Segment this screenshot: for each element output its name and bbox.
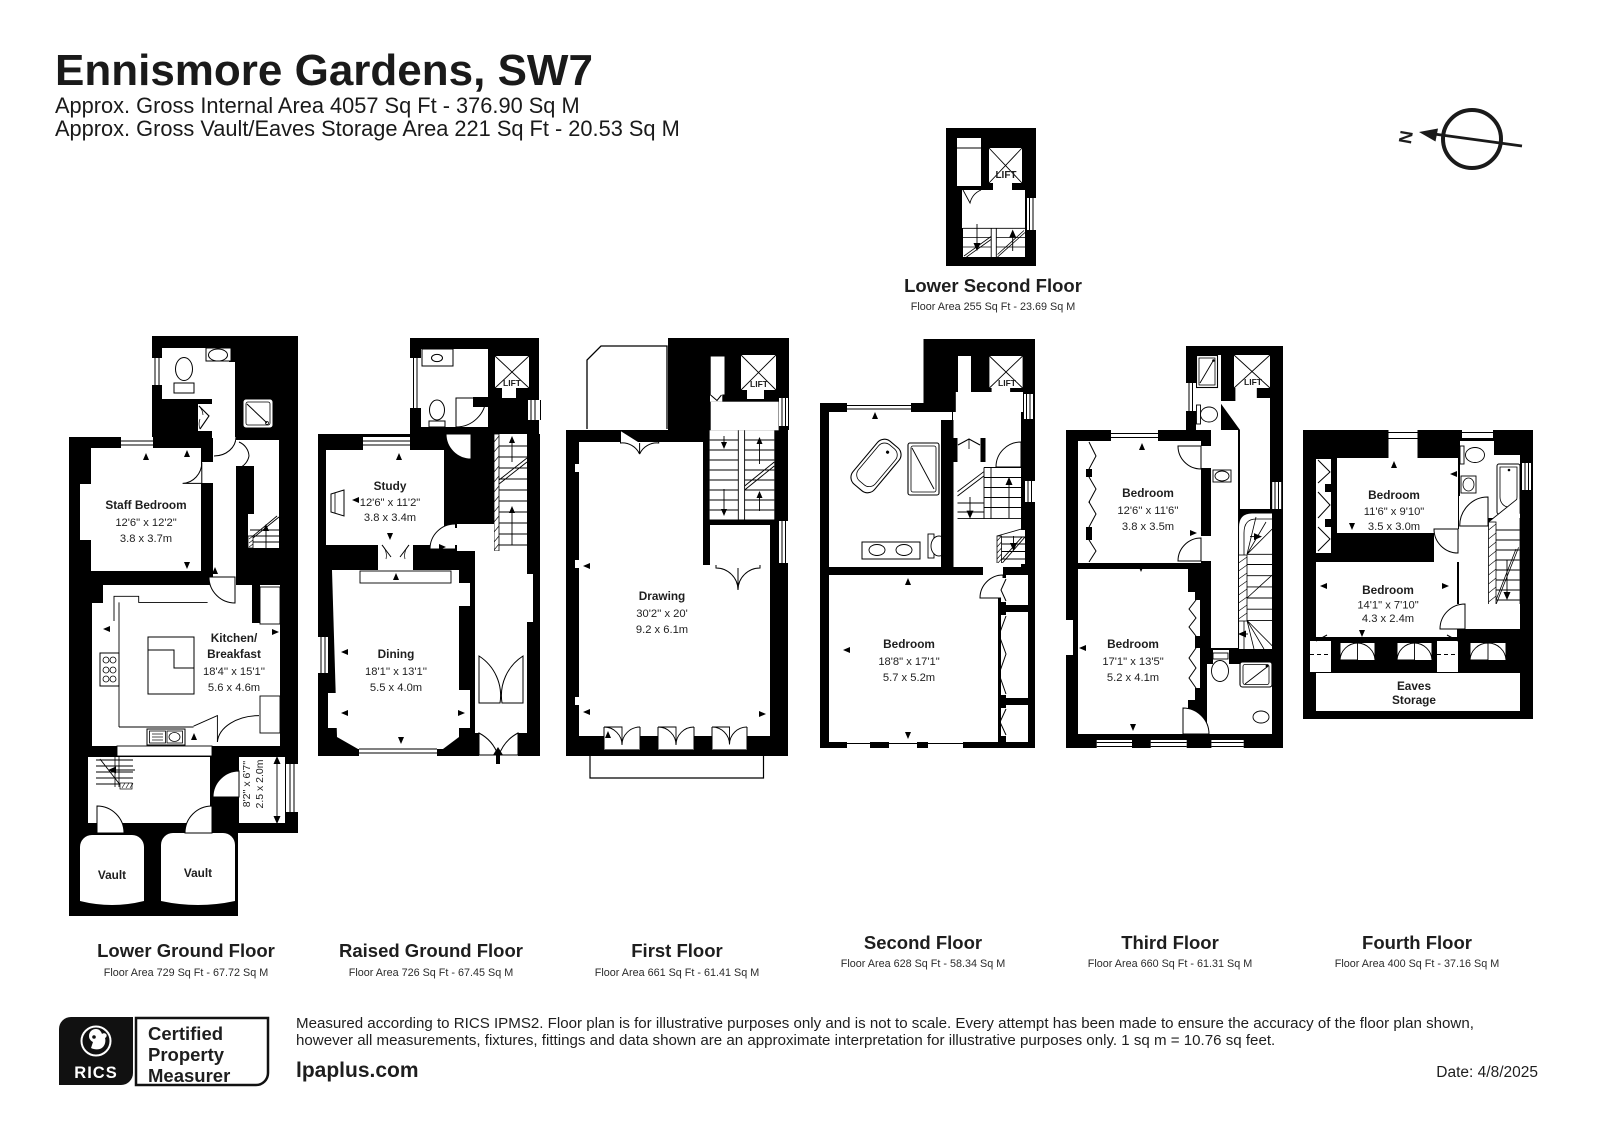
svg-text:12'6" x 11'2": 12'6" x 11'2" [360,497,421,509]
svg-text:Fourth Floor: Fourth Floor [1362,932,1472,953]
svg-text:Eaves: Eaves [1397,679,1432,693]
svg-text:Property: Property [148,1044,225,1065]
svg-text:Floor Area 729 Sq Ft - 67.72 S: Floor Area 729 Sq Ft - 67.72 Sq M [104,967,268,979]
svg-text:Floor Area 255 Sq Ft - 23.69 S: Floor Area 255 Sq Ft - 23.69 Sq M [911,301,1075,313]
svg-text:3.8 x 3.4m: 3.8 x 3.4m [364,512,416,524]
svg-text:however all measurements, fixt: however all measurements, fixtures, fitt… [296,1032,1275,1049]
svg-text:Kitchen/: Kitchen/ [211,631,258,645]
svg-text:Staff Bedroom: Staff Bedroom [105,498,186,512]
svg-text:11'6" x 9'10": 11'6" x 9'10" [1364,506,1425,518]
svg-text:17'1" x 13'5": 17'1" x 13'5" [1102,656,1163,668]
svg-text:Dining: Dining [378,647,415,661]
svg-text:Bedroom: Bedroom [1122,486,1174,500]
svg-text:Bedroom: Bedroom [1107,637,1159,651]
svg-text:Ennismore Gardens, SW7: Ennismore Gardens, SW7 [55,46,593,95]
svg-text:Storage: Storage [1392,693,1436,707]
svg-text:LIFT: LIFT [750,379,769,389]
svg-text:LIFT: LIFT [503,378,522,388]
svg-text:4.3 x 2.4m: 4.3 x 2.4m [1362,613,1414,625]
svg-text:Bedroom: Bedroom [1362,583,1414,597]
svg-text:5.7 x 5.2m: 5.7 x 5.2m [883,672,935,684]
svg-text:First Floor: First Floor [631,940,722,961]
svg-text:12'6'' x 11'6'': 12'6'' x 11'6'' [1117,505,1178,517]
svg-text:Bedroom: Bedroom [883,637,935,651]
svg-text:Third Floor: Third Floor [1121,932,1219,953]
svg-text:LIFT: LIFT [995,170,1016,181]
svg-text:Measured according to RICS IPM: Measured according to RICS IPMS2. Floor … [296,1015,1474,1032]
svg-text:Floor Area 660 Sq Ft - 61.31 S: Floor Area 660 Sq Ft - 61.31 Sq M [1088,958,1252,970]
svg-text:5.5 x 4.0m: 5.5 x 4.0m [370,682,422,694]
svg-text:Study: Study [374,479,407,493]
svg-text:Lower Second Floor: Lower Second Floor [904,275,1082,296]
svg-text:Vault: Vault [98,868,126,882]
svg-text:Approx. Gross Internal Area 40: Approx. Gross Internal Area 4057 Sq Ft -… [55,93,580,118]
svg-text:3.5 x 3.0m: 3.5 x 3.0m [1368,521,1420,533]
svg-text:18'8" x 17'1": 18'8" x 17'1" [878,656,939,668]
svg-text:Approx. Gross Vault/Eaves Stor: Approx. Gross Vault/Eaves Storage Area 2… [55,116,680,141]
svg-text:5.6 x 4.6m: 5.6 x 4.6m [208,682,260,694]
svg-text:Lower Ground Floor: Lower Ground Floor [97,940,275,961]
svg-text:Bedroom: Bedroom [1368,488,1420,502]
svg-text:Floor Area 661 Sq Ft - 61.41 S: Floor Area 661 Sq Ft - 61.41 Sq M [595,967,759,979]
svg-text:LIFT: LIFT [998,378,1017,388]
svg-text:12'6" x 12'2": 12'6" x 12'2" [115,517,176,529]
svg-text:Breakfast: Breakfast [207,647,261,661]
svg-text:18'1'' x 13'1'': 18'1'' x 13'1'' [365,666,427,678]
svg-text:3.8 x 3.7m: 3.8 x 3.7m [120,533,172,545]
svg-text:5.2 x 4.1m: 5.2 x 4.1m [1107,672,1159,684]
svg-text:Second Floor: Second Floor [864,932,982,953]
svg-text:Drawing: Drawing [639,589,686,603]
svg-text:Date: 4/8/2025: Date: 4/8/2025 [1436,1064,1538,1081]
svg-text:Floor Area 726 Sq Ft - 67.45 S: Floor Area 726 Sq Ft - 67.45 Sq M [349,967,513,979]
svg-text:9.2 x 6.1m: 9.2 x 6.1m [636,624,688,636]
svg-text:Floor Area 628 Sq Ft - 58.34 S: Floor Area 628 Sq Ft - 58.34 Sq M [841,958,1005,970]
svg-text:Vault: Vault [184,866,212,880]
svg-text:8'2'' x 6'7'': 8'2'' x 6'7'' [241,761,253,807]
svg-text:14'1" x 7'10": 14'1" x 7'10" [1357,600,1418,612]
svg-text:Certified: Certified [148,1023,223,1044]
svg-text:2.5 x 2.0m: 2.5 x 2.0m [254,759,266,808]
svg-text:Raised Ground Floor: Raised Ground Floor [339,940,523,961]
svg-text:Measurer: Measurer [148,1065,230,1086]
svg-text:3.8 x 3.5m: 3.8 x 3.5m [1122,521,1174,533]
svg-text:LIFT: LIFT [1244,377,1263,387]
svg-text:Floor Area 400 Sq Ft - 37.16 S: Floor Area 400 Sq Ft - 37.16 Sq M [1335,958,1499,970]
svg-text:30'2'' x 20': 30'2'' x 20' [636,608,687,620]
svg-text:RICS: RICS [74,1064,117,1082]
svg-text:lpaplus.com: lpaplus.com [296,1059,419,1082]
svg-text:18'4'' x 15'1'': 18'4'' x 15'1'' [203,666,265,678]
